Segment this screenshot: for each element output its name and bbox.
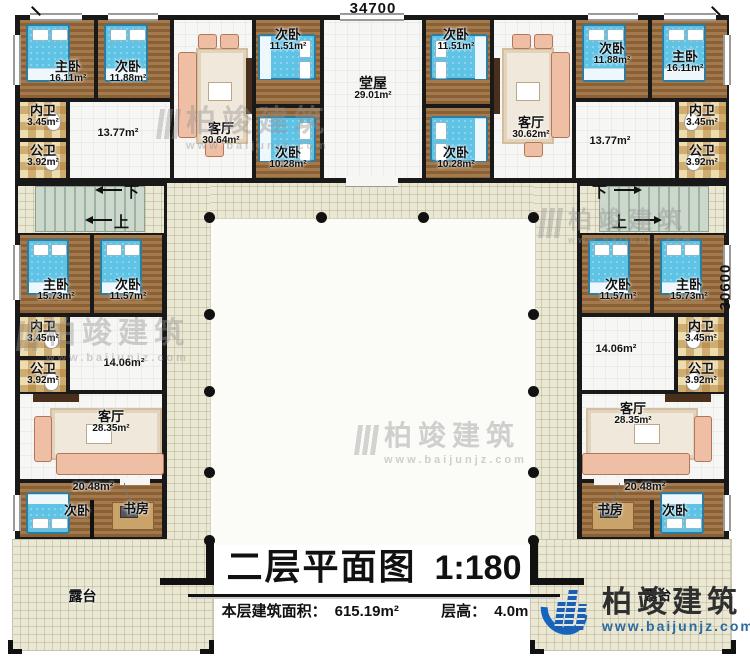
column-dot: [528, 467, 539, 478]
stairs-right-up-label: 上: [612, 211, 627, 232]
corner-terrace-left-bl: [8, 640, 22, 654]
door-opening-main-hall: [346, 176, 398, 187]
inner-courtyard: [210, 218, 536, 545]
bed-master-left-wing: [27, 239, 69, 295]
table-living-right-wing: [634, 424, 660, 444]
veranda-left: [167, 183, 210, 539]
tv-cabinet-right-wing: [665, 394, 711, 402]
bed-bed2-top-right: [582, 24, 626, 82]
veranda-right: [534, 183, 577, 539]
stairs-left-up-label: 上: [114, 211, 129, 232]
bed-master-top-right: [662, 24, 706, 82]
bed-mid-right-upper: [430, 34, 488, 80]
tv-cabinet-top-right: [494, 58, 500, 114]
sofa-living-top-left: [178, 52, 197, 138]
wall-suite-divider-left: [90, 500, 94, 539]
bed-bed2-right-wing: [588, 239, 630, 295]
bed-master-top-left: [26, 24, 70, 82]
corner-terrace-right-br: [722, 640, 736, 654]
column-dot: [418, 212, 429, 223]
bed-master-right-wing: [660, 239, 702, 295]
hall-right-wing: [580, 315, 676, 392]
armchair-living-top-left-1: [198, 34, 217, 49]
floor-plan: 主卧16.11m² 次卧11.88m² 客厅30.64m² 内卫3.45m² 公…: [0, 0, 750, 658]
room-bath-public-top-right: [677, 140, 728, 180]
toilet-bath-public-top-right: [686, 152, 701, 171]
armchair-living-left-wing: [34, 416, 52, 462]
stairs-right-down-label: 下: [592, 181, 607, 202]
bed-suite-left-wing: [26, 492, 70, 534]
stairs-right-down-arrowhead: [634, 186, 642, 194]
window-master-top-right-side: [723, 35, 731, 85]
plan-title-row: 二层平面图 1:180: [188, 538, 560, 597]
monitor-study-left-wing: [120, 506, 138, 518]
area-label: 本层建筑面积：: [222, 603, 327, 620]
hall-top-right: [574, 100, 677, 180]
armchair-living-top-right-1: [512, 34, 531, 49]
dimension-top: 34700: [323, 0, 423, 17]
stairs-right-up-arrowhead: [654, 216, 662, 224]
stairs-right-down-arrow: [614, 189, 634, 191]
toilet-bath-private-right-wing: [686, 330, 701, 349]
window-master-left-wing-side: [13, 245, 21, 300]
area-value: 615.19m²: [335, 603, 399, 620]
armchair-living-top-left-3: [205, 142, 224, 157]
window-master-top-left-side: [13, 35, 21, 85]
column-dot: [528, 212, 539, 223]
company-logo: 柏竣建筑 www.baijunjz.com: [542, 582, 750, 640]
tv-cabinet-top-left: [246, 58, 252, 114]
column-dot: [204, 386, 215, 397]
bed-mid-left-lower: [258, 116, 316, 162]
armchair-living-top-right-3: [524, 142, 543, 157]
window-bed2-top-left: [108, 13, 158, 21]
table-living-top-right: [516, 82, 540, 101]
stairs-left-down-arrowhead: [95, 186, 103, 194]
floor-height-label: 层高：: [441, 603, 486, 620]
window-bed2-top-right: [588, 13, 638, 21]
stairs-left-up-arrowhead: [85, 216, 93, 224]
wall-suite-divider-right: [650, 500, 654, 539]
toilet-bath-public-top-left: [44, 152, 59, 171]
terrace-left: [12, 539, 214, 651]
column-dot: [204, 212, 215, 223]
room-bath-private-left-wing: [18, 315, 68, 358]
sofa-living-right-wing: [582, 453, 690, 475]
window-master-top-right: [664, 13, 716, 21]
stairs-left-up-arrow: [92, 219, 112, 221]
plan-scale: 1:180: [435, 549, 522, 588]
tv-cabinet-left-wing: [33, 394, 79, 402]
table-living-left-wing: [86, 424, 112, 444]
armchair-living-top-right-2: [534, 34, 553, 49]
title-block: 二层平面图 1:180: [188, 538, 560, 597]
toilet-bath-private-top-left: [46, 112, 61, 131]
corner-terrace-right-bl: [530, 640, 544, 654]
company-logo-name: 柏竣建筑: [602, 588, 750, 618]
column-dot: [316, 212, 327, 223]
column-dot: [528, 386, 539, 397]
sofa-living-left-wing: [56, 453, 164, 475]
stairs-left-down-label: 下: [124, 181, 139, 202]
table-living-top-left: [208, 82, 232, 101]
sofa-living-top-right: [551, 52, 570, 138]
bed-bed2-left-wing: [100, 239, 142, 295]
bed-mid-right-lower: [430, 116, 488, 162]
floor-height-value: 4.0m: [494, 603, 528, 620]
column-dot: [204, 309, 215, 320]
plan-title: 二层平面图: [227, 538, 417, 590]
plan-info-row: 本层建筑面积：615.19m² 层高：4.0m: [150, 600, 600, 621]
room-bath-public-top-left: [18, 140, 68, 180]
bed-suite-right-wing: [660, 492, 704, 534]
toilet-bath-public-left-wing: [44, 372, 59, 391]
company-logo-icon: [542, 582, 594, 640]
toilet-bath-private-left-wing: [44, 330, 59, 349]
toilet-bath-public-right-wing: [686, 372, 701, 391]
window-suite-left-wing-side: [13, 495, 21, 531]
company-logo-url: www.baijunjz.com: [602, 618, 750, 634]
room-main-hall: [322, 18, 424, 180]
corner-terrace-left-br: [200, 640, 214, 654]
window-suite-right-wing-side: [723, 495, 731, 531]
dimension-right: 30600: [717, 242, 737, 332]
stairs-left-down-arrow: [102, 189, 122, 191]
column-dot: [528, 309, 539, 320]
monitor-study-right-wing: [600, 506, 618, 518]
armchair-living-top-left-2: [220, 34, 239, 49]
toilet-bath-private-top-right: [684, 112, 699, 131]
bed-bed2-top-left: [104, 24, 148, 82]
veranda-top: [210, 183, 534, 218]
column-dot: [204, 467, 215, 478]
stairs-right-up-arrow: [634, 219, 654, 221]
hall-left-wing: [68, 315, 164, 392]
bed-mid-left-upper: [258, 34, 316, 80]
hall-top-left: [68, 100, 172, 180]
armchair-living-right-wing: [694, 416, 712, 462]
